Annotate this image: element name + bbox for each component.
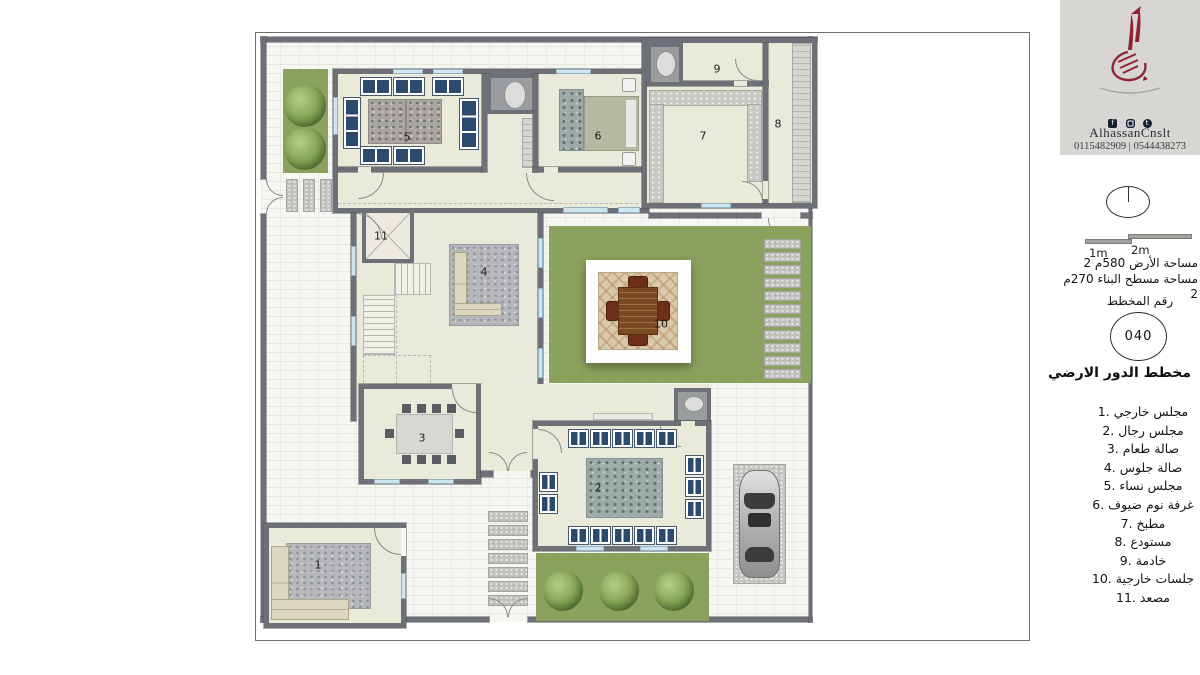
stepping-stone bbox=[764, 343, 801, 353]
entry-wall bbox=[481, 471, 493, 477]
stepping-stone bbox=[764, 265, 801, 275]
window bbox=[374, 479, 400, 484]
legend-item: 7. مطبخ bbox=[1063, 516, 1200, 535]
majlis-chair bbox=[569, 527, 588, 544]
room-label-6: 6 bbox=[595, 130, 602, 143]
door-opening bbox=[681, 421, 695, 426]
legend-item: 3. صالة طعام bbox=[1063, 441, 1200, 460]
plan-title: مخطط الدور الارضي bbox=[1040, 365, 1195, 381]
sofa bbox=[361, 147, 391, 164]
stepping-stone bbox=[764, 239, 801, 249]
sheet: 1 2 3 4 5 6 7 8 9 10 11 f t AlhassanCnsl… bbox=[0, 0, 1200, 675]
bed-pillows bbox=[625, 99, 637, 148]
window bbox=[538, 238, 543, 268]
window bbox=[576, 546, 604, 551]
door-opening bbox=[401, 528, 406, 556]
legend-item: 1. مجلس خارجي bbox=[1063, 404, 1200, 423]
majlis-chair bbox=[540, 495, 557, 513]
dining-chair bbox=[447, 455, 456, 464]
entrance-paver bbox=[286, 179, 298, 212]
storage-shelf bbox=[792, 43, 811, 203]
entrance-paver bbox=[303, 179, 315, 212]
room8-west-wall bbox=[763, 43, 768, 203]
kitchen-counter bbox=[747, 104, 762, 182]
majlis-chair bbox=[591, 430, 610, 447]
outdoor-table bbox=[618, 287, 658, 335]
dining-chair bbox=[432, 404, 441, 413]
window bbox=[333, 97, 338, 135]
stair-flight-lower bbox=[363, 295, 395, 355]
courtyard-fence-east bbox=[801, 213, 812, 218]
car-sunroof bbox=[748, 513, 771, 527]
tree bbox=[284, 128, 326, 170]
stepping-stone bbox=[764, 291, 801, 301]
tree bbox=[284, 85, 326, 127]
majlis-chair bbox=[686, 456, 703, 474]
entrance-paver bbox=[320, 179, 332, 212]
console-table bbox=[593, 413, 653, 420]
legend-item: 6. غرفة نوم ضيوف bbox=[1063, 497, 1200, 516]
window bbox=[538, 348, 543, 378]
hall-dashed-line bbox=[338, 203, 638, 204]
car bbox=[739, 470, 780, 578]
tree bbox=[599, 571, 639, 611]
nightstand-lamp bbox=[622, 152, 636, 166]
sofa bbox=[344, 98, 360, 148]
sofa bbox=[361, 78, 391, 95]
dining-chair bbox=[402, 404, 411, 413]
room-label-4: 4 bbox=[481, 266, 488, 279]
room-label-7: 7 bbox=[700, 130, 707, 143]
window bbox=[701, 203, 731, 208]
logo-panel: f t AlhassanCnslt 0115482909 | 054443827… bbox=[1060, 0, 1200, 155]
north-arrow-icon bbox=[1106, 186, 1150, 218]
majlis-chair bbox=[613, 527, 632, 544]
majlis-chair bbox=[635, 430, 654, 447]
window bbox=[538, 288, 543, 318]
door-opening bbox=[763, 181, 768, 199]
stepping-stone bbox=[764, 330, 801, 340]
car-windshield bbox=[744, 493, 775, 509]
window bbox=[401, 573, 406, 599]
room-label-9: 9 bbox=[714, 63, 721, 76]
majlis-chair bbox=[613, 430, 632, 447]
car-rear-window bbox=[745, 547, 774, 562]
legend-item: 9. خادمة bbox=[1063, 553, 1200, 572]
stepping-stone bbox=[764, 304, 801, 314]
stair-flight-upper bbox=[394, 263, 431, 295]
l-sofa bbox=[271, 599, 349, 620]
window bbox=[393, 69, 423, 74]
legend-item: 8. مستودع bbox=[1063, 534, 1200, 553]
window bbox=[428, 479, 454, 484]
door-opening bbox=[734, 81, 747, 86]
dining-chair bbox=[432, 455, 441, 464]
window bbox=[351, 316, 356, 346]
scale-label-2m: 2m bbox=[1131, 243, 1150, 257]
courtyard-fence-west bbox=[649, 213, 761, 218]
majlis-chair bbox=[569, 430, 588, 447]
stepping-stone bbox=[488, 511, 528, 522]
wc-sink bbox=[684, 396, 704, 412]
window bbox=[351, 246, 356, 276]
legend-item: 10. جلسات خارجية bbox=[1063, 571, 1200, 590]
dining-chair bbox=[385, 429, 394, 438]
window bbox=[618, 207, 640, 213]
majlis-chair bbox=[686, 478, 703, 496]
shower-basin bbox=[656, 51, 676, 77]
tree bbox=[654, 571, 694, 611]
majlis-chair bbox=[635, 527, 654, 544]
window bbox=[433, 69, 463, 74]
window bbox=[640, 546, 668, 551]
legend-item: 4. صالة جلوس bbox=[1063, 460, 1200, 479]
majlis-chair bbox=[657, 527, 676, 544]
stepping-stone bbox=[764, 252, 801, 262]
majlis-chair bbox=[657, 430, 676, 447]
boundary-wall-left-upper bbox=[261, 37, 266, 179]
stepping-stone bbox=[764, 278, 801, 288]
room-legend: 1. مجلس خارجي 2. مجلس رجال 3. صالة طعام … bbox=[1063, 404, 1200, 609]
stepping-stone bbox=[764, 317, 801, 327]
stepping-stone bbox=[764, 356, 801, 366]
room-label-5: 5 bbox=[404, 131, 411, 144]
stepping-stone bbox=[488, 581, 528, 592]
kitchen-counter bbox=[649, 90, 762, 106]
majlis-chair bbox=[540, 473, 557, 491]
stepping-stone bbox=[488, 539, 528, 550]
plan-number: 040 bbox=[1125, 329, 1153, 344]
room-label-2: 2 bbox=[595, 482, 602, 495]
room6-west-wall bbox=[533, 74, 538, 172]
stepping-stone bbox=[764, 369, 801, 379]
sofa bbox=[394, 78, 424, 95]
tree bbox=[543, 571, 583, 611]
land-area: مساحة الأرض 580م 2 bbox=[1053, 256, 1198, 272]
majlis-chair bbox=[686, 500, 703, 518]
plan-number-label: رقم المخطط bbox=[1090, 294, 1190, 308]
carpet bbox=[368, 99, 406, 144]
company-name: AlhassanCnslt bbox=[1060, 125, 1200, 141]
stepping-stone bbox=[488, 553, 528, 564]
kitchen-counter bbox=[649, 104, 664, 203]
scale-bar-1m bbox=[1085, 239, 1132, 244]
room-label-11: 11 bbox=[374, 230, 388, 243]
bathtub bbox=[504, 81, 526, 109]
scale-bar-2m bbox=[1128, 234, 1192, 239]
company-logo bbox=[1060, 0, 1200, 112]
floor-plan: 1 2 3 4 5 6 7 8 9 10 11 bbox=[255, 32, 1030, 641]
room-label-8: 8 bbox=[775, 118, 782, 131]
l-sofa bbox=[454, 303, 502, 316]
dining-chair bbox=[417, 404, 426, 413]
window bbox=[556, 69, 591, 74]
company-phone: 0115482909 | 0544438273 bbox=[1060, 141, 1200, 152]
carpet bbox=[406, 99, 442, 144]
legend-item: 11. مصعد bbox=[1063, 590, 1200, 609]
legend-item: 5. مجلس نساء bbox=[1063, 478, 1200, 497]
sofa bbox=[460, 99, 478, 149]
plan-number-badge: 040 bbox=[1110, 312, 1167, 361]
dining-chair bbox=[402, 455, 411, 464]
dining-chair bbox=[447, 404, 456, 413]
window bbox=[563, 207, 608, 213]
dining-chair bbox=[455, 429, 464, 438]
bedroom-rug bbox=[559, 89, 584, 151]
room-label-3: 3 bbox=[419, 432, 426, 445]
nightstand-lamp bbox=[622, 78, 636, 92]
dining-chair bbox=[417, 455, 426, 464]
stepping-stone bbox=[488, 567, 528, 578]
sofa bbox=[433, 78, 463, 95]
room-label-1: 1 bbox=[315, 559, 322, 572]
majlis-chair bbox=[591, 527, 610, 544]
stepping-stone bbox=[488, 525, 528, 536]
sofa bbox=[394, 147, 424, 164]
room-label-10: 10 bbox=[654, 318, 668, 331]
legend-item: 2. مجلس رجال bbox=[1063, 423, 1200, 442]
